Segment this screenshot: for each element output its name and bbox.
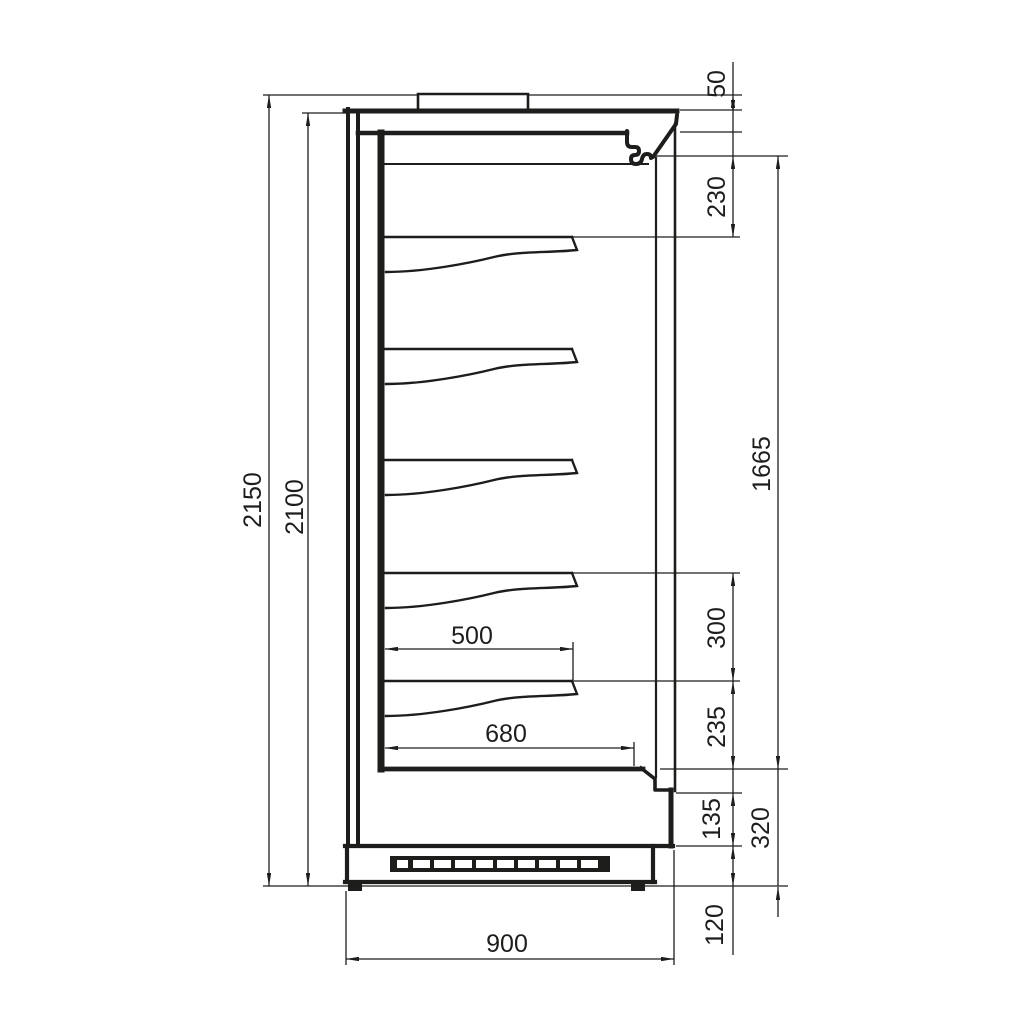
dim-label-body-height: 2100 bbox=[281, 479, 309, 535]
cabinet-structure bbox=[345, 94, 677, 882]
cabinet-section-drawing: 2150 2100 50 230 1665 300 235 135 320 12… bbox=[0, 0, 1024, 1024]
dim-label-lower-gap: 235 bbox=[703, 706, 731, 748]
dim-label-plinth: 120 bbox=[701, 904, 729, 946]
dim-label-canopy-cap: 50 bbox=[703, 70, 731, 98]
shelf-1 bbox=[385, 237, 577, 272]
technical-drawing-page: 2150 2100 50 230 1665 300 235 135 320 12… bbox=[0, 0, 1024, 1024]
dim-label-base-total: 320 bbox=[747, 807, 775, 849]
dim-label-shelf-pitch: 300 bbox=[703, 607, 731, 649]
shelf-5 bbox=[385, 681, 577, 716]
dim-label-display-opening: 1665 bbox=[748, 436, 776, 492]
ventilation-grille bbox=[390, 856, 610, 872]
dim-label-deck-depth: 680 bbox=[485, 720, 527, 748]
canopy-bump bbox=[418, 94, 528, 111]
dim-label-front-panel: 135 bbox=[698, 798, 726, 840]
dim-label-overall-height: 2150 bbox=[239, 472, 267, 528]
dim-label-shelf-depth: 500 bbox=[451, 622, 493, 650]
foot-right bbox=[631, 883, 645, 891]
dim-label-top-duct: 230 bbox=[703, 176, 731, 218]
shelf-2 bbox=[385, 349, 577, 384]
dimension-labels: 2150 2100 50 230 1665 300 235 135 320 12… bbox=[239, 70, 776, 958]
dim-label-overall-depth: 900 bbox=[486, 930, 528, 958]
foot-left bbox=[348, 883, 362, 891]
shelf-3 bbox=[385, 460, 577, 495]
shelf-4 bbox=[385, 573, 577, 608]
